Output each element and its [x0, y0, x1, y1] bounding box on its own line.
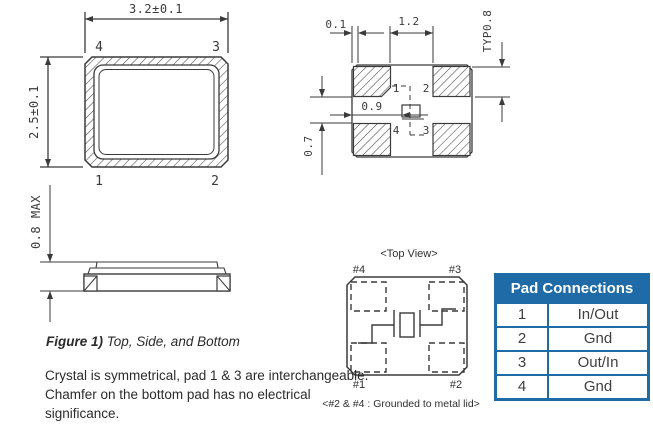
- dim-vgap-label: 0.7: [302, 135, 315, 156]
- pad-connection: Out/In: [549, 352, 647, 374]
- figure-caption-rest: Top, Side, and Bottom: [103, 334, 240, 349]
- land-pattern-figure: [310, 26, 510, 175]
- package-top-view-figure: [40, 12, 228, 167]
- land-pad-1-label: 1: [393, 82, 400, 95]
- dim-pad-height-label: TYP0.8: [481, 10, 494, 53]
- pad-label-3: 3: [212, 40, 220, 55]
- table-row: 2 Gnd: [497, 326, 647, 350]
- dim-center-label: 0.9: [361, 100, 382, 113]
- pad-number: 3: [497, 352, 549, 374]
- note-line-3: significance.: [45, 404, 368, 423]
- dim-gap-label: 1.2: [398, 15, 419, 28]
- pad-connection: Gnd: [549, 376, 647, 398]
- figure-caption: Figure 1) Top, Side, and Bottom: [46, 334, 240, 349]
- land-pad-2-label: 2: [423, 82, 430, 95]
- table-row: 3 Out/In: [497, 350, 647, 374]
- pad-number: 4: [497, 376, 549, 398]
- dim-height-label: 2.5±0.1: [27, 85, 41, 139]
- package-side-view-figure: [40, 185, 230, 322]
- figure-notes: Crystal is symmetrical, pad 1 & 3 are in…: [45, 366, 368, 423]
- pad-number: 1: [497, 304, 549, 326]
- datasheet-figure-page: 3.2±0.1 2.5±0.1 4 3 1 2 0.8 MAX: [0, 0, 653, 427]
- land-pad-3-label: 3: [423, 124, 430, 137]
- pad-connection: Gnd: [549, 328, 647, 350]
- pad-label-2: 2: [211, 174, 219, 189]
- note-line-1: Crystal is symmetrical, pad 1 & 3 are in…: [45, 366, 368, 385]
- pad-label-4: 4: [95, 40, 103, 55]
- dim-edge-label: 0.1: [325, 18, 346, 31]
- schem-pad-2-label: #2: [450, 379, 462, 391]
- pad-connection: In/Out: [549, 304, 647, 326]
- table-row: 1 In/Out: [497, 302, 647, 326]
- pad-connections-table: Pad Connections 1 In/Out 2 Gnd 3 Out/In …: [494, 273, 650, 401]
- pad-connections-title: Pad Connections: [497, 276, 647, 302]
- pad-label-1: 1: [95, 174, 103, 189]
- note-line-2: Chamfer on the bottom pad has no electri…: [45, 385, 368, 404]
- top-view-title: <Top View>: [380, 248, 437, 260]
- table-row: 4 Gnd: [497, 374, 647, 398]
- schem-pad-3-label: #3: [449, 264, 461, 276]
- pad-number: 2: [497, 328, 549, 350]
- dim-thickness-label: 0.8 MAX: [29, 195, 43, 249]
- schem-pad-4-label: #4: [353, 264, 365, 276]
- land-pad-4-label: 4: [393, 124, 400, 137]
- figure-caption-lead: Figure 1): [46, 334, 103, 349]
- top-view-schematic-figure: [347, 277, 467, 375]
- dim-width-label: 3.2±0.1: [129, 2, 183, 16]
